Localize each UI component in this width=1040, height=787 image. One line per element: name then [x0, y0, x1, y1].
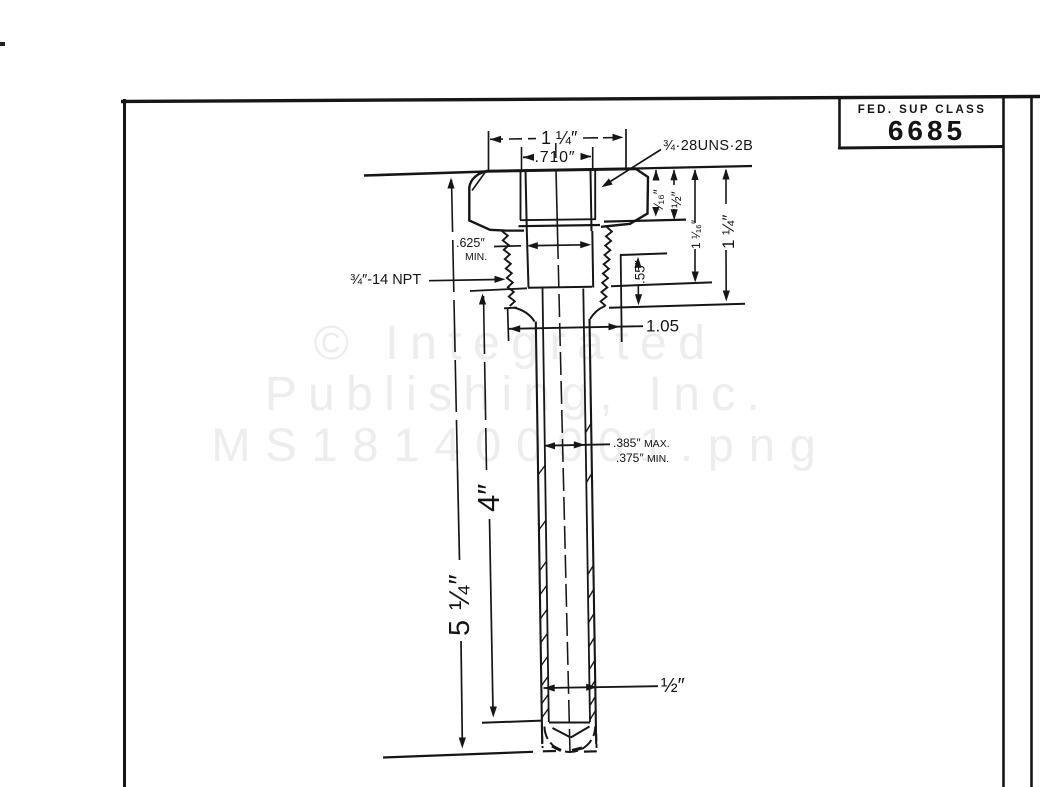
- svg-text:6685: 6685: [888, 115, 966, 146]
- svg-text:¾″-14 NPT: ¾″-14 NPT: [350, 272, 421, 288]
- svg-text:5 ¼″: 5 ¼″: [444, 573, 476, 636]
- svg-text:¾·28UNS·2B: ¾·28UNS·2B: [663, 138, 753, 154]
- svg-text:1 ¼″: 1 ¼″: [719, 215, 738, 249]
- svg-text:1.05: 1.05: [646, 317, 679, 336]
- svg-text:.710″: .710″: [535, 149, 576, 166]
- svg-text:4″: 4″: [471, 484, 506, 512]
- svg-text:½″: ½″: [668, 191, 684, 208]
- svg-text:1 ¼″: 1 ¼″: [541, 128, 578, 148]
- svg-text:½″: ½″: [661, 675, 685, 697]
- svg-text:MIN.: MIN.: [465, 251, 487, 263]
- svg-text:.375″ MIN.: .375″ MIN.: [616, 451, 669, 465]
- svg-text:Publishing, Inc.: Publishing, Inc.: [265, 368, 771, 421]
- svg-text:1 ¹⁄₁₆″: 1 ¹⁄₁₆″: [689, 219, 703, 249]
- svg-text:.385″ MAX.: .385″ MAX.: [613, 436, 670, 450]
- svg-text:MS181400001.png: MS181400001.png: [211, 418, 830, 471]
- svg-text:.625″: .625″: [456, 236, 485, 250]
- svg-text:.55″: .55″: [633, 260, 648, 284]
